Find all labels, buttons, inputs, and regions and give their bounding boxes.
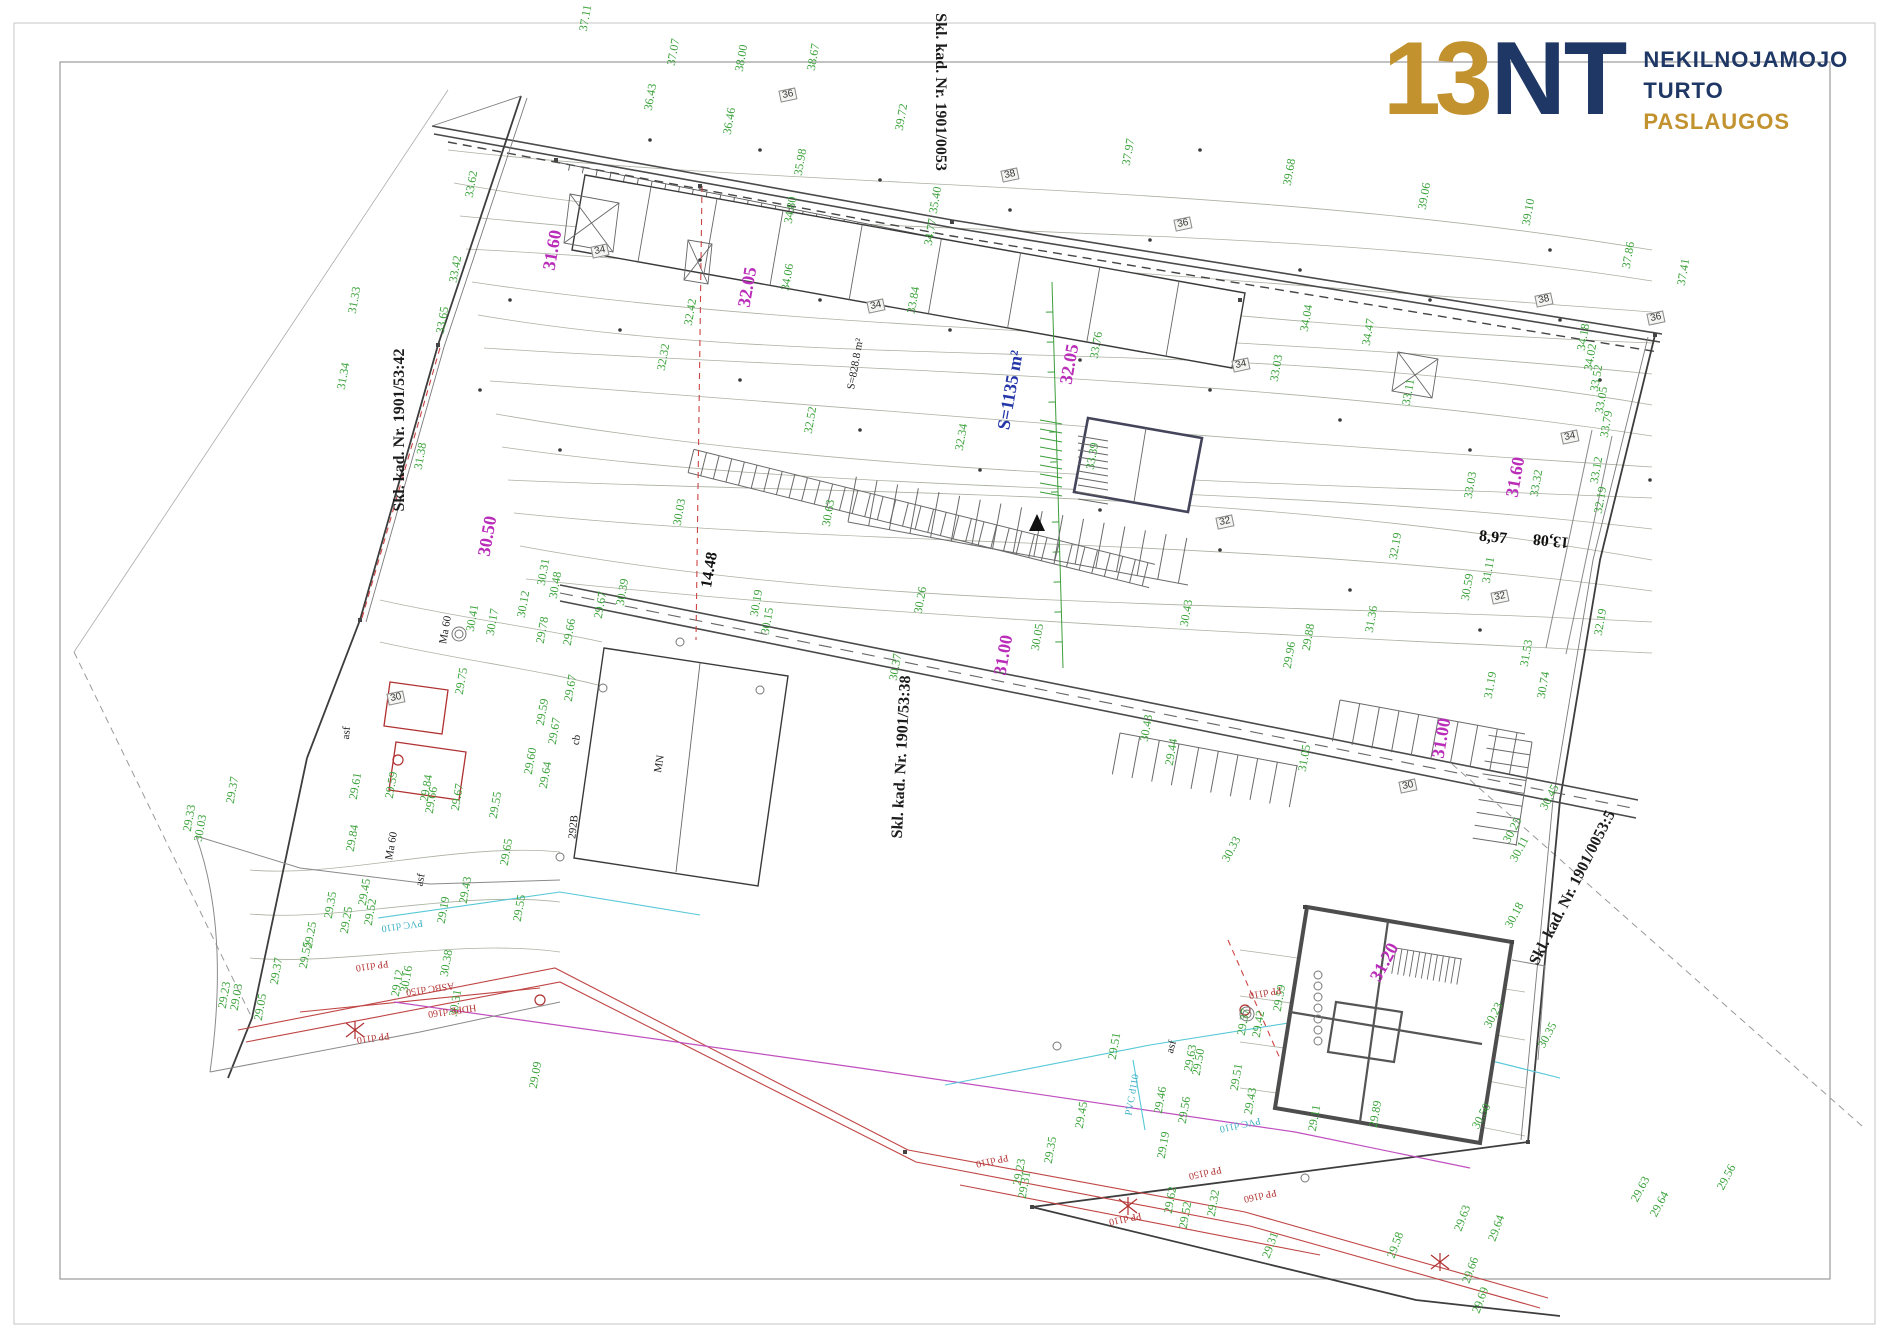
site-plan-drawing — [0, 0, 1900, 1344]
survey-plan-page: Skl. kad. Nr. 1901/53:42Skl. kad. Nr. 19… — [0, 0, 1900, 1344]
logo-digits: 13 — [1383, 30, 1487, 129]
logo-line2: TURTO — [1643, 75, 1848, 106]
logo-line1: NEKILNOJAMOJO — [1643, 44, 1848, 75]
company-logo: 13 NT NEKILNOJAMOJO TURTO PASLAUGOS — [1383, 30, 1848, 137]
logo-text: NEKILNOJAMOJO TURTO PASLAUGOS — [1643, 44, 1848, 137]
logo-line3: PASLAUGOS — [1643, 106, 1848, 137]
logo-letters: NT — [1491, 30, 1626, 129]
